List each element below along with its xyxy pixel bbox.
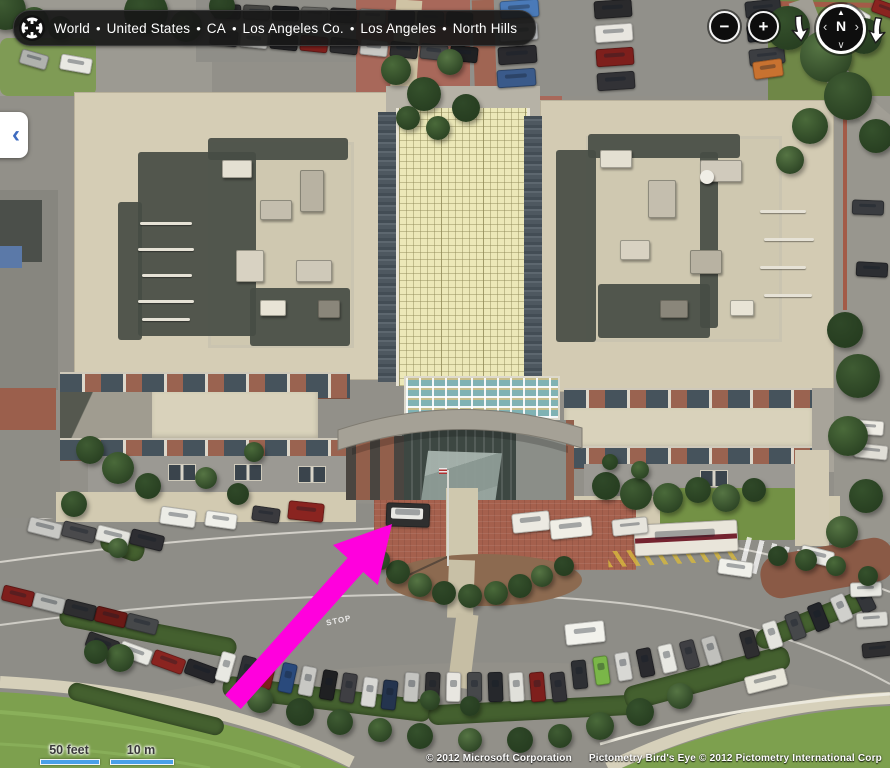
chevron-left-icon: ‹ [12,121,20,149]
zoom-in-button[interactable]: + [748,11,779,42]
crumb-separator: • [350,21,355,36]
breadcrumb-items: World • United States • CA • Los Angeles… [54,21,517,36]
tree-canopy [437,49,463,75]
tree-canopy [396,106,420,130]
crumb-los-angeles-co[interactable]: Los Angeles Co. [243,21,344,36]
tree-canopy [61,491,87,517]
tree-canopy [247,687,273,713]
scale-feet-label: 50 feet [40,743,98,757]
tree-canopy [244,442,264,462]
crumb-separator: • [96,21,101,36]
tree-canopy [407,723,433,749]
birds-eye-map-viewport[interactable]: STOP World • United States • CA • Los An… [0,0,890,768]
rotate-right-button[interactable] [864,16,889,46]
breadcrumb[interactable]: World • United States • CA • Los Angeles… [13,10,536,46]
tree-canopy [507,727,533,753]
tree-canopy [135,473,161,499]
tree-canopy [426,116,450,140]
tree-canopy [370,550,390,570]
tree-canopy [858,566,878,586]
tree-canopy [824,72,872,120]
tree-canopy [460,696,480,716]
compass-north-arrow-icon[interactable]: ▲ [819,8,863,17]
compass-control[interactable]: ▲ ‹ N › ∨ [816,4,866,54]
tree-canopy [768,546,788,566]
scale-metric-bar [110,759,174,765]
tree-canopy [712,484,740,512]
down-arrow-icon [868,17,887,44]
tree-canopy [368,718,392,742]
tree-canopy [554,556,574,576]
tree-canopy [227,483,249,505]
copyright-attribution: © 2012 Microsoft Corporation Pictometry … [426,753,882,764]
tree-canopy [84,640,108,664]
tree-canopy [106,644,134,672]
tree-canopy [458,584,482,608]
pan-left-button[interactable]: ‹ [0,112,28,158]
tree-canopy [653,483,683,513]
tree-canopy [828,416,868,456]
tree-canopy [531,565,553,587]
crumb-ca[interactable]: CA [207,21,226,36]
tree-canopy [826,516,858,548]
tree-canopy [484,581,508,605]
compass-rotate-right-icon[interactable]: › [855,19,859,34]
tree-canopy [408,573,432,597]
tree-canopy [458,728,482,752]
tree-canopy [859,119,890,153]
tree-canopy [195,467,217,489]
rotate-left-button[interactable] [788,14,813,44]
tree-canopy [620,478,652,510]
crumb-united-states[interactable]: United States [107,21,191,36]
tree-canopy [836,354,880,398]
trees-layer [0,0,890,768]
zoom-out-button[interactable]: − [709,11,740,42]
tree-canopy [548,724,572,748]
crumb-separator: • [232,21,237,36]
down-arrow-icon [791,15,810,42]
tree-canopy [826,556,846,576]
plus-icon: + [759,18,769,35]
tree-canopy [602,454,618,470]
minus-icon: − [720,18,730,35]
tree-canopy [452,94,480,122]
tree-canopy [586,712,614,740]
tree-canopy [286,698,314,726]
crumb-world[interactable]: World [54,21,90,36]
tree-canopy [102,452,134,484]
tree-canopy [381,55,411,85]
tree-canopy [327,709,353,735]
tree-canopy [795,549,817,571]
tree-canopy [508,574,532,598]
crumb-separator: • [196,21,201,36]
tree-canopy [592,472,620,500]
tree-canopy [849,479,883,513]
crumb-north-hills[interactable]: North Hills [453,21,517,36]
scale-feet-bar [40,759,100,765]
tree-canopy [631,461,649,479]
tree-canopy [685,477,711,503]
crumb-los-angeles[interactable]: Los Angeles [360,21,436,36]
tree-canopy [792,108,828,144]
tree-canopy [386,560,410,584]
tree-canopy [776,146,804,174]
tree-canopy [626,698,654,726]
tree-canopy [420,690,440,710]
crumb-separator: • [442,21,447,36]
tree-canopy [108,538,128,558]
tree-canopy [432,581,456,605]
globe-target-icon [19,15,45,41]
tree-canopy [76,436,104,464]
tree-canopy [827,312,863,348]
microsoft-copyright: © 2012 Microsoft Corporation [426,753,572,764]
tree-canopy [667,683,693,709]
tree-canopy [742,478,766,502]
pictometry-copyright: Pictometry Bird's Eye © 2012 Pictometry … [589,753,882,764]
scale-metric-label: 10 m [110,743,172,757]
compass-south-icon[interactable]: ∨ [819,40,863,51]
